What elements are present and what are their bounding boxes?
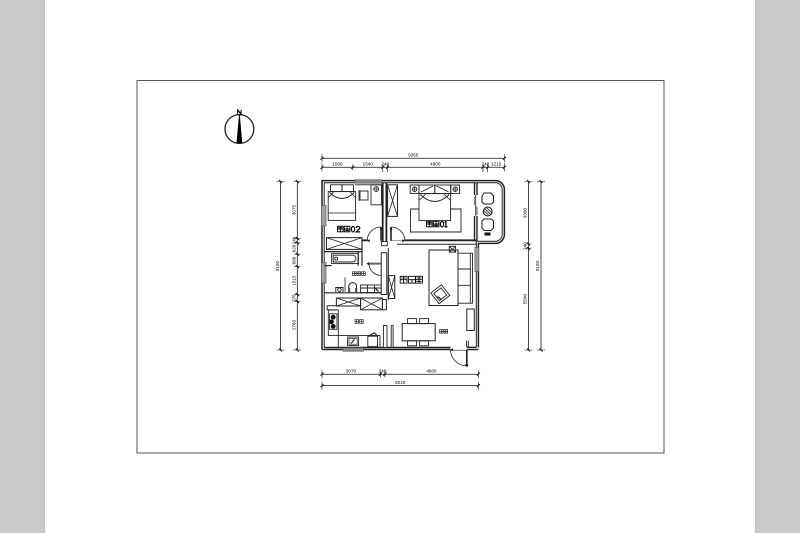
svg-text:240: 240 <box>292 236 297 244</box>
svg-text:5590: 5590 <box>523 293 528 304</box>
svg-text:3070: 3070 <box>346 369 357 374</box>
svg-text:1515: 1515 <box>292 275 297 286</box>
svg-text:1540: 1540 <box>363 162 374 167</box>
svg-text:3075: 3075 <box>292 204 297 215</box>
svg-text:620: 620 <box>292 244 297 252</box>
svg-text:9150: 9150 <box>535 260 540 271</box>
svg-text:240: 240 <box>523 242 528 250</box>
svg-text:9150: 9150 <box>275 260 280 271</box>
svg-text:240: 240 <box>379 369 387 374</box>
svg-text:4900: 4900 <box>426 369 437 374</box>
svg-text:240: 240 <box>482 162 490 167</box>
svg-text:3390: 3390 <box>523 207 528 218</box>
svg-text:1215: 1215 <box>491 162 502 167</box>
svg-text:240: 240 <box>381 162 389 167</box>
svg-text:9355: 9355 <box>408 153 419 158</box>
svg-text:4900: 4900 <box>430 162 441 167</box>
svg-text:1580: 1580 <box>332 162 343 167</box>
svg-text:2760: 2760 <box>292 319 297 330</box>
svg-text:8210: 8210 <box>395 380 406 385</box>
svg-text:375: 375 <box>292 294 297 302</box>
svg-text:680: 680 <box>292 256 297 264</box>
